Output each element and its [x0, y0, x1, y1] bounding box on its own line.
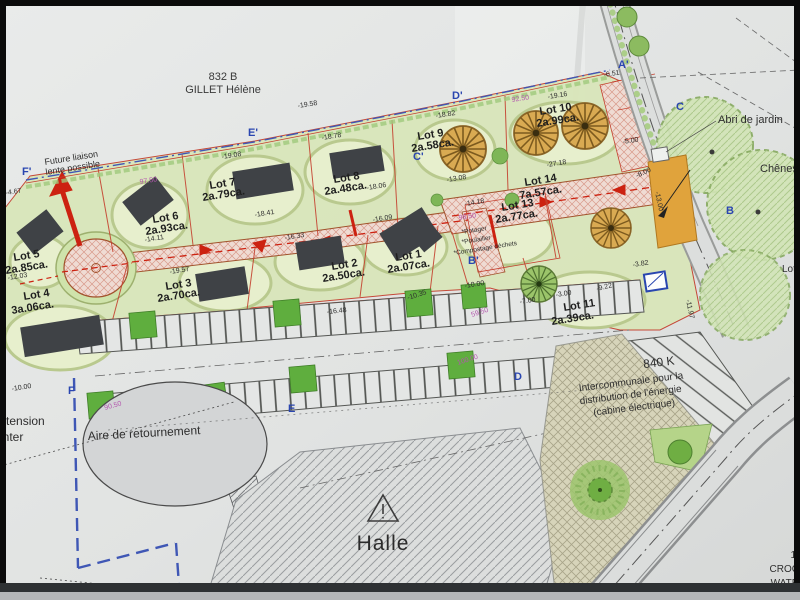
- video-frame-site-plan: 832 B GILLET Hélène Future liaison lente…: [0, 0, 800, 600]
- parcel-owner: GILLET Hélène: [185, 84, 261, 96]
- marker-d-prime: D': [452, 90, 463, 102]
- marker-c: C: [676, 101, 684, 113]
- cut-text-tension: e tension: [0, 414, 45, 428]
- video-bottom-gray-strip: [0, 592, 800, 600]
- parcel-ref: 832 B: [209, 71, 238, 83]
- marker-e: E: [288, 403, 295, 415]
- marker-d: D: [514, 371, 522, 383]
- electric-cabinet: [644, 271, 667, 291]
- plaza-tree: [570, 460, 630, 520]
- marker-a-prime: A': [618, 59, 629, 71]
- halle-label: Halle: [357, 532, 410, 555]
- video-bottom-dark-strip: [0, 583, 800, 592]
- oaks-label: Chênes: [760, 163, 798, 175]
- turnaround-circle: [83, 382, 267, 506]
- marker-f-prime: F': [22, 166, 32, 178]
- site-plan-drawing: 832 B GILLET Hélène Future liaison lente…: [0, 0, 800, 600]
- marker-b: B: [726, 205, 734, 217]
- marker-e-prime: E': [248, 127, 258, 139]
- marker-f: F: [68, 385, 75, 397]
- garden-shed-label: Abri de jardin: [718, 114, 783, 126]
- marker-b-prime: B': [468, 255, 479, 267]
- marker-c-prime: C': [413, 151, 424, 163]
